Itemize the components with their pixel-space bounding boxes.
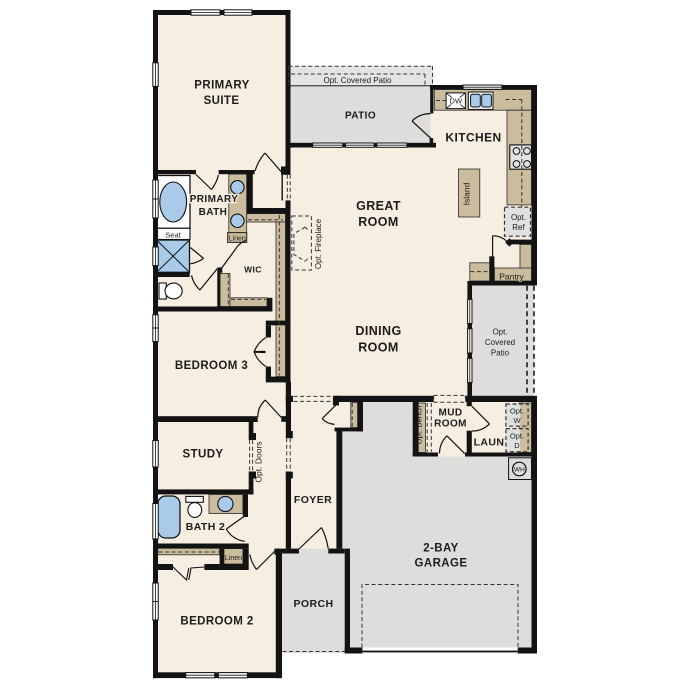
svg-text:Opt.: Opt. [510, 407, 524, 416]
svg-text:KITCHEN: KITCHEN [445, 131, 501, 145]
svg-text:Island: Island [462, 182, 472, 205]
svg-text:MUD: MUD [439, 408, 463, 419]
svg-text:PORCH: PORCH [294, 598, 334, 610]
svg-text:DINING: DINING [355, 324, 401, 338]
svg-text:PRIMARY: PRIMARY [190, 194, 239, 205]
svg-text:Linen: Linen [225, 555, 242, 562]
svg-text:Opt.: Opt. [511, 213, 526, 222]
svg-text:Opt.: Opt. [492, 328, 507, 337]
svg-text:BEDROOM 3: BEDROOM 3 [175, 360, 248, 372]
svg-text:FOYER: FOYER [294, 494, 332, 506]
svg-text:PATIO: PATIO [345, 110, 376, 121]
svg-text:ROOM: ROOM [434, 418, 467, 429]
svg-text:LAUN: LAUN [474, 437, 505, 449]
svg-text:WIC: WIC [244, 265, 262, 275]
svg-text:D: D [514, 441, 520, 450]
svg-text:BATH 2: BATH 2 [186, 521, 226, 533]
svg-text:Opt. Fireplace: Opt. Fireplace [314, 218, 323, 269]
svg-text:SUITE: SUITE [204, 95, 240, 107]
svg-text:GARAGE: GARAGE [415, 558, 468, 570]
svg-text:Opt.: Opt. [510, 432, 524, 441]
svg-text:PRIMARY: PRIMARY [194, 80, 249, 92]
svg-text:2-BAY: 2-BAY [423, 543, 458, 555]
svg-text:ROOM: ROOM [358, 341, 399, 355]
svg-text:Pantry: Pantry [499, 272, 524, 282]
svg-text:Opt. Covered Patio: Opt. Covered Patio [323, 76, 392, 85]
svg-text:Covered: Covered [485, 338, 515, 347]
svg-text:Ref: Ref [512, 223, 525, 232]
svg-text:DW: DW [450, 96, 463, 105]
svg-text:Linen: Linen [229, 235, 246, 242]
svg-text:Patio: Patio [491, 349, 510, 358]
svg-text:WH: WH [514, 467, 525, 474]
svg-text:Seat: Seat [165, 230, 181, 239]
svg-text:ROOM: ROOM [358, 215, 399, 229]
svg-text:GREAT: GREAT [356, 199, 401, 213]
svg-text:W: W [513, 416, 521, 425]
svg-text:STUDY: STUDY [183, 449, 224, 461]
svg-text:BATH: BATH [199, 207, 228, 218]
svg-text:Opt. Bench: Opt. Bench [415, 405, 424, 444]
svg-text:BEDROOM 2: BEDROOM 2 [180, 616, 253, 628]
svg-text:Opt. Doors: Opt. Doors [254, 441, 264, 482]
